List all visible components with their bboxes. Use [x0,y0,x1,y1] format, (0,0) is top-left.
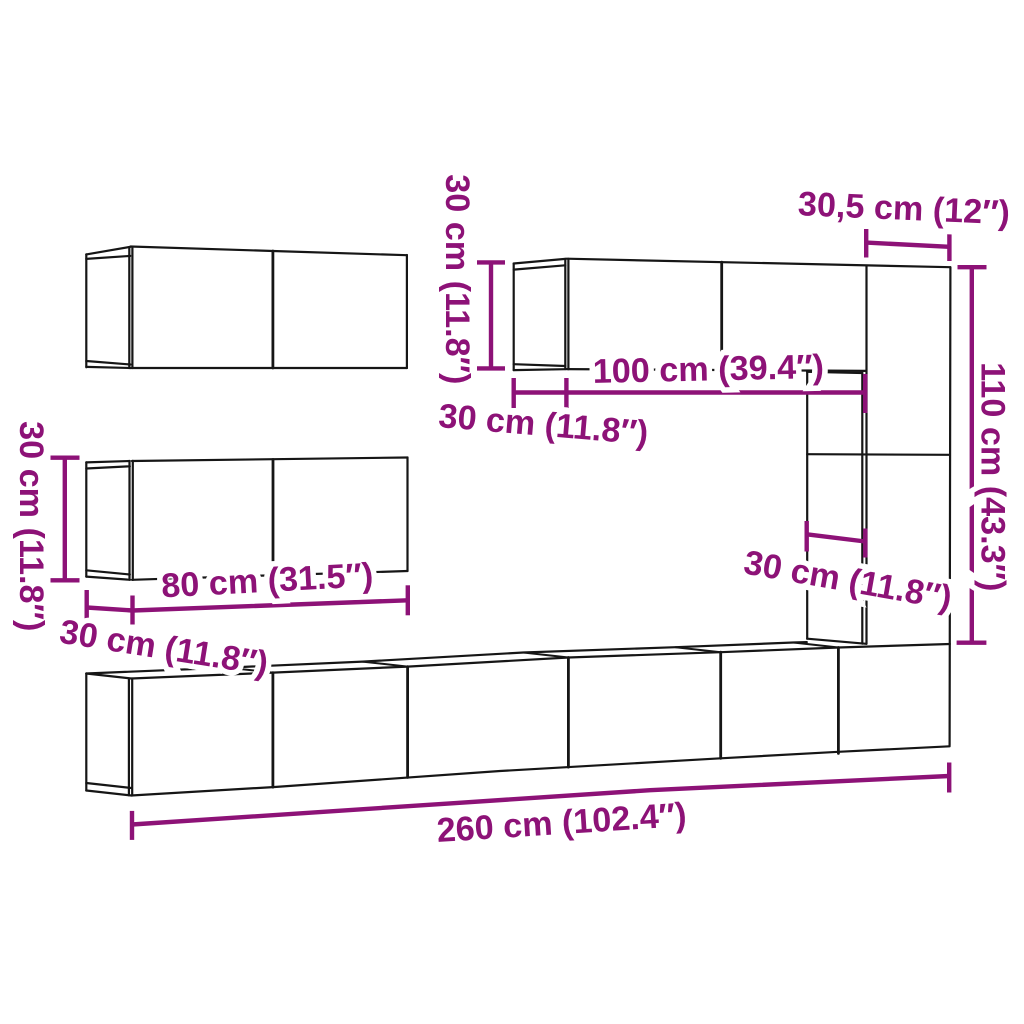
svg-text:30 cm (11.8″): 30 cm (11.8″) [438,174,476,384]
svg-text:110 cm (43.3″): 110 cm (43.3″) [974,362,1012,591]
svg-text:30 cm (11.8″): 30 cm (11.8″) [12,421,50,631]
svg-text:100 cm (39.4″): 100 cm (39.4″) [592,348,824,391]
